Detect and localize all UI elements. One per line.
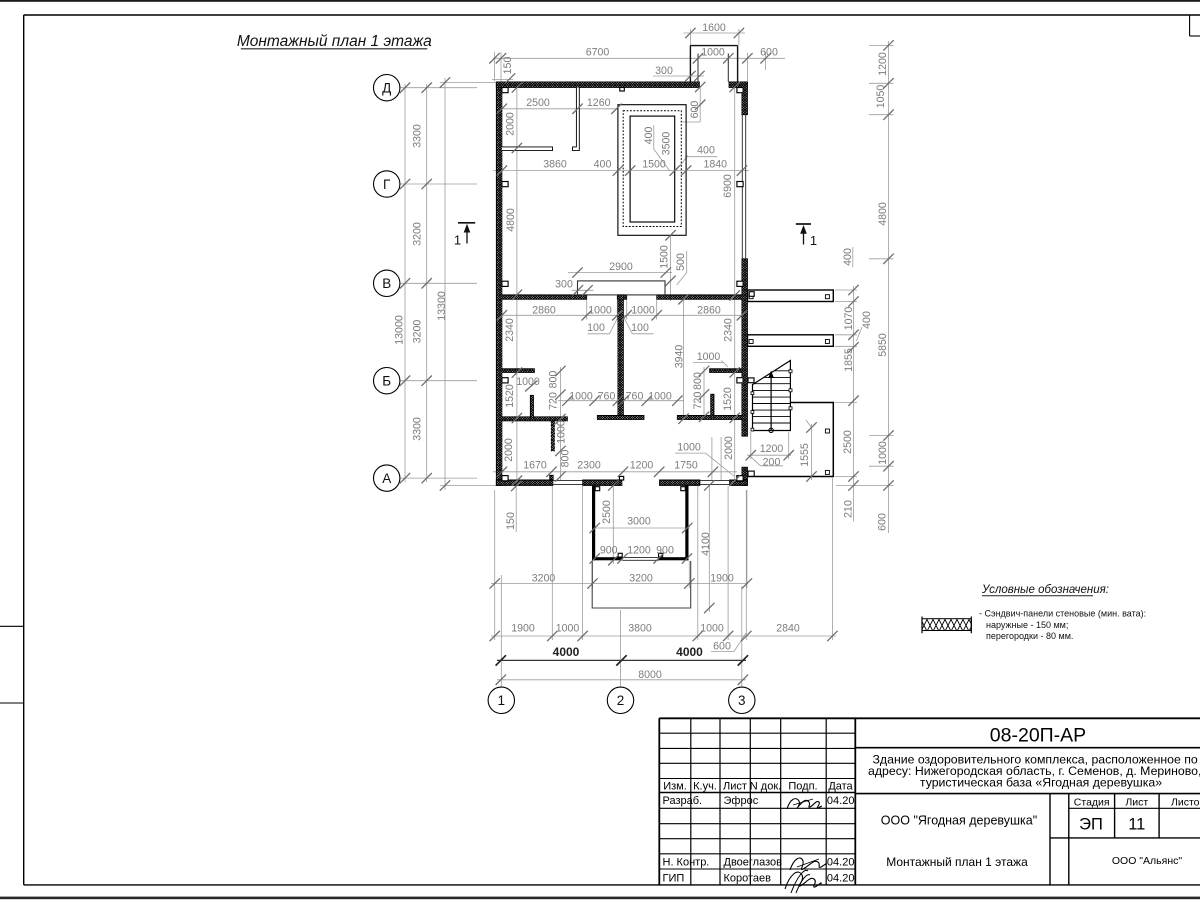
svg-text:2000: 2000	[503, 438, 515, 462]
svg-text:720: 720	[692, 392, 704, 410]
svg-text:3200: 3200	[629, 572, 653, 584]
svg-text:1840: 1840	[704, 158, 728, 170]
svg-text:Листов: Листов	[1171, 796, 1200, 808]
svg-text:300: 300	[555, 279, 573, 291]
svg-text:2860: 2860	[532, 304, 556, 316]
svg-text:2000: 2000	[505, 112, 517, 136]
svg-text:- Сэндвич-панели стеновые (мин: - Сэндвич-панели стеновые (мин. вата):	[979, 609, 1146, 619]
svg-text:08-20П-АР: 08-20П-АР	[990, 725, 1086, 747]
svg-text:13300: 13300	[436, 291, 448, 321]
svg-text:3200: 3200	[411, 320, 423, 344]
svg-text:600: 600	[713, 640, 731, 652]
svg-text:1670: 1670	[523, 459, 547, 471]
svg-text:3940: 3940	[674, 345, 686, 369]
svg-text:1000: 1000	[648, 391, 672, 403]
svg-text:3500: 3500	[660, 132, 672, 156]
svg-text:1900: 1900	[710, 572, 734, 584]
svg-text:1200: 1200	[630, 459, 654, 471]
svg-text:800: 800	[559, 450, 571, 468]
svg-text:Условные обозначения:: Условные обозначения:	[981, 584, 1109, 596]
svg-text:К.уч.: К.уч.	[693, 781, 717, 793]
svg-text:760: 760	[598, 391, 616, 403]
svg-text:4000: 4000	[553, 645, 580, 659]
svg-text:Двоеглазов: Двоеглазов	[724, 857, 783, 869]
svg-text:1750: 1750	[674, 459, 698, 471]
svg-text:ООО "Ягодная деревушка": ООО "Ягодная деревушка"	[881, 814, 1037, 828]
svg-text:перегородки - 80 мм.: перегородки - 80 мм.	[986, 631, 1073, 641]
svg-text:3300: 3300	[411, 417, 423, 441]
svg-text:1900: 1900	[511, 622, 535, 634]
svg-text:2500: 2500	[601, 500, 613, 524]
svg-text:1600: 1600	[702, 22, 726, 34]
svg-text:2340: 2340	[722, 318, 734, 342]
svg-text:1000: 1000	[877, 441, 889, 465]
svg-text:4000: 4000	[676, 645, 703, 659]
svg-text:400: 400	[842, 248, 854, 266]
svg-text:3860: 3860	[543, 158, 567, 170]
svg-text:3300: 3300	[411, 124, 423, 148]
svg-text:900: 900	[656, 544, 674, 556]
svg-text:Н. Контр.: Н. Контр.	[663, 857, 710, 869]
svg-text:1: 1	[810, 233, 817, 248]
svg-text:Г: Г	[383, 177, 391, 192]
svg-text:Д: Д	[382, 81, 391, 96]
svg-text:1000: 1000	[701, 46, 725, 58]
svg-text:1500: 1500	[658, 245, 670, 269]
svg-text:Б: Б	[382, 374, 391, 389]
svg-text:400: 400	[697, 144, 715, 156]
svg-text:2500: 2500	[526, 97, 550, 109]
svg-text:2: 2	[617, 693, 625, 708]
svg-text:04.20: 04.20	[827, 872, 855, 884]
svg-text:04.20: 04.20	[827, 857, 855, 869]
svg-text:500: 500	[675, 253, 687, 271]
svg-text:4800: 4800	[877, 202, 889, 226]
svg-text:ГИП: ГИП	[663, 872, 685, 884]
svg-text:Лист: Лист	[723, 781, 747, 793]
svg-text:800: 800	[547, 371, 559, 389]
svg-text:1520: 1520	[722, 387, 734, 411]
svg-text:600: 600	[760, 46, 778, 58]
svg-text:04.20: 04.20	[827, 795, 855, 807]
svg-text:8000: 8000	[638, 669, 662, 681]
svg-text:Стадия: Стадия	[1074, 796, 1110, 808]
svg-text:Эфрос: Эфрос	[724, 795, 759, 807]
svg-text:11: 11	[1128, 816, 1145, 834]
svg-text:900: 900	[600, 544, 618, 556]
svg-text:4100: 4100	[700, 532, 712, 556]
svg-text:1000: 1000	[588, 304, 612, 316]
svg-text:2500: 2500	[842, 430, 854, 454]
svg-text:4800: 4800	[505, 208, 517, 232]
svg-text:210: 210	[842, 500, 854, 518]
svg-text:1200: 1200	[627, 544, 651, 556]
svg-text:300: 300	[655, 65, 673, 77]
svg-text:наружные - 150 мм;: наружные - 150 мм;	[986, 620, 1068, 630]
svg-text:400: 400	[594, 158, 612, 170]
svg-text:1555: 1555	[799, 443, 811, 467]
svg-text:5850: 5850	[877, 333, 889, 357]
svg-text:600: 600	[689, 101, 701, 119]
svg-text:Монтажный план 1 этажа: Монтажный план 1 этажа	[237, 33, 432, 50]
svg-text:200: 200	[763, 457, 781, 469]
svg-text:Монтажный план 1 этажа: Монтажный план 1 этажа	[886, 855, 1028, 869]
svg-text:1500: 1500	[642, 158, 666, 170]
svg-text:Подп.: Подп.	[788, 781, 817, 793]
svg-text:1520: 1520	[504, 384, 516, 408]
svg-text:Лист: Лист	[1125, 796, 1148, 808]
svg-text:В: В	[382, 276, 391, 291]
svg-text:2900: 2900	[609, 261, 633, 273]
svg-text:Дата: Дата	[828, 781, 853, 793]
svg-text:1050: 1050	[875, 85, 887, 109]
svg-text:3200: 3200	[532, 572, 556, 584]
svg-text:760: 760	[626, 391, 644, 403]
svg-text:150: 150	[502, 57, 514, 75]
svg-text:400: 400	[861, 311, 873, 329]
svg-text:1855: 1855	[843, 348, 855, 372]
svg-text:3200: 3200	[411, 222, 423, 246]
svg-text:1: 1	[498, 693, 506, 708]
svg-text:1000: 1000	[697, 351, 721, 363]
svg-text:13000: 13000	[393, 315, 405, 345]
svg-text:1000: 1000	[677, 441, 701, 453]
svg-text:2340: 2340	[504, 318, 516, 342]
svg-text:2300: 2300	[577, 459, 601, 471]
svg-text:2000: 2000	[723, 436, 735, 460]
svg-text:1000: 1000	[556, 622, 580, 634]
svg-text:150: 150	[505, 512, 517, 530]
svg-text:3000: 3000	[627, 515, 651, 527]
svg-text:А: А	[382, 471, 391, 486]
svg-text:туристическая база «Ягодная де: туристическая база «Ягодная деревушка»	[920, 776, 1162, 790]
svg-text:100: 100	[631, 322, 649, 334]
svg-text:1260: 1260	[587, 97, 611, 109]
svg-text:1070: 1070	[843, 307, 855, 331]
svg-text:100: 100	[587, 322, 605, 334]
svg-text:6700: 6700	[586, 46, 610, 58]
svg-text:2860: 2860	[697, 304, 721, 316]
svg-text:3: 3	[738, 693, 746, 708]
svg-text:2840: 2840	[776, 622, 800, 634]
svg-text:1200: 1200	[760, 443, 784, 455]
svg-text:400: 400	[643, 127, 655, 145]
svg-text:1: 1	[454, 233, 461, 248]
svg-text:1000: 1000	[516, 376, 540, 388]
svg-text:1000: 1000	[631, 304, 655, 316]
svg-text:Коротаев: Коротаев	[724, 872, 772, 884]
svg-text:600: 600	[876, 513, 888, 531]
svg-text:1000: 1000	[569, 391, 593, 403]
svg-text:720: 720	[547, 392, 559, 410]
svg-text:1200: 1200	[877, 52, 889, 76]
svg-text:ЭП: ЭП	[1079, 816, 1103, 834]
svg-text:6900: 6900	[722, 174, 734, 198]
svg-text:Разраб.: Разраб.	[663, 795, 703, 807]
svg-text:3800: 3800	[628, 622, 652, 634]
svg-text:Изм.: Изм.	[663, 781, 687, 793]
svg-text:N док.: N док.	[750, 781, 781, 793]
svg-text:1000: 1000	[555, 420, 567, 444]
svg-text:ООО "Альянс": ООО "Альянс"	[1112, 855, 1182, 867]
svg-text:800: 800	[692, 372, 704, 390]
svg-text:1000: 1000	[700, 622, 724, 634]
